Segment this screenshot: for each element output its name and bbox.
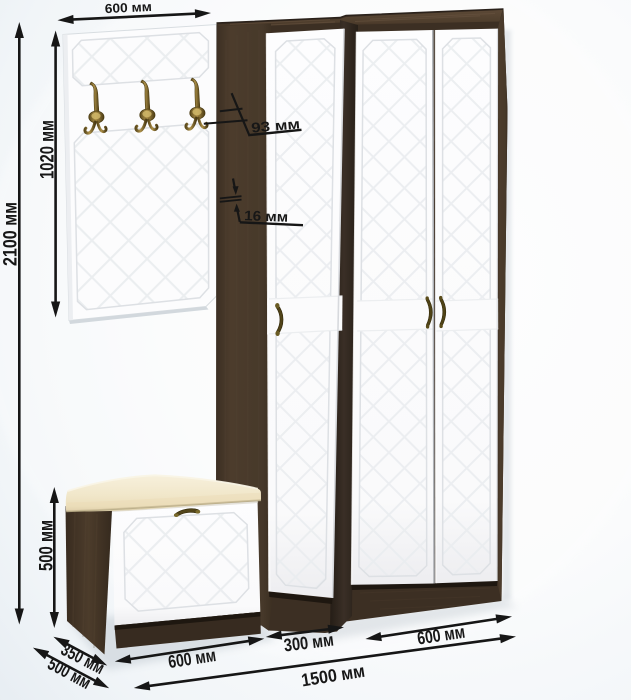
- svg-text:2100 мм: 2100 мм: [1, 202, 22, 266]
- svg-text:1020 мм: 1020 мм: [38, 120, 59, 179]
- svg-text:600 мм: 600 мм: [104, 0, 152, 16]
- svg-text:16 мм: 16 мм: [244, 207, 289, 225]
- svg-text:500 мм: 500 мм: [37, 520, 58, 571]
